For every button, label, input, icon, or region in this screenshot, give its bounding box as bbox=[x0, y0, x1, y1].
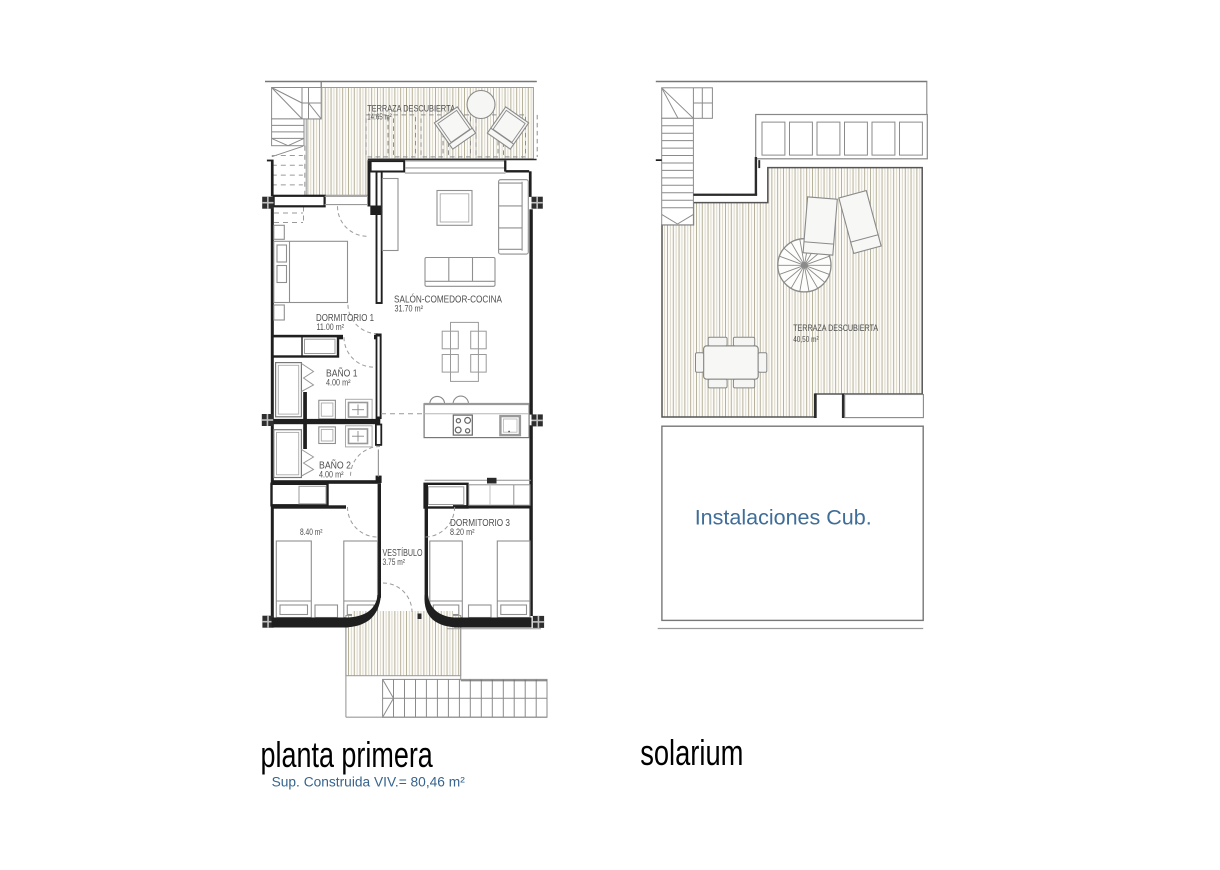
svg-text:40,50 m²: 40,50 m² bbox=[793, 334, 819, 344]
svg-text:8.40 m²: 8.40 m² bbox=[300, 527, 323, 537]
svg-text:3.75 m²: 3.75 m² bbox=[383, 557, 406, 567]
svg-text:Sup. Construida VIV.= 80,46 m²: Sup. Construida VIV.= 80,46 m² bbox=[272, 775, 466, 790]
svg-text:31.70 m²: 31.70 m² bbox=[395, 304, 424, 314]
svg-text:4.00 m²: 4.00 m² bbox=[326, 378, 351, 388]
svg-text:solarium: solarium bbox=[640, 732, 743, 773]
svg-text:11.00 m²: 11.00 m² bbox=[317, 322, 345, 332]
svg-text:8.20 m²: 8.20 m² bbox=[450, 527, 475, 537]
svg-text:planta primera: planta primera bbox=[261, 734, 434, 775]
svg-text:TERRAZA DESCUBIERTA: TERRAZA DESCUBIERTA bbox=[793, 323, 878, 334]
svg-text:4.00 m²: 4.00 m² bbox=[319, 470, 344, 480]
svg-text:Instalaciones Cub.: Instalaciones Cub. bbox=[695, 506, 872, 530]
